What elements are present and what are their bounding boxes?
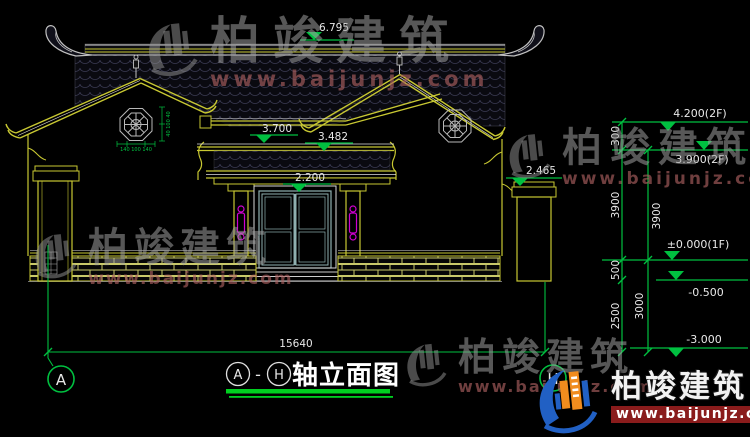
- octagon-window-left: [120, 109, 152, 141]
- cad-viewport: { "watermark": { "brand": "柏竣建筑", "url":…: [0, 0, 750, 437]
- brand-logo-name: 柏竣建筑: [611, 371, 750, 404]
- title-underline-thick: [226, 389, 390, 394]
- dim-3000: 3000: [634, 293, 646, 320]
- level-marker-ridge: 6.795: [300, 22, 354, 40]
- level-footing: -3.000: [686, 333, 721, 346]
- brand-logo: 柏竣建筑 www.baijunjz.com: [531, 360, 750, 434]
- level-main-eave-value: 3.700: [262, 123, 292, 135]
- level-parapet-2f: 4.200(2F): [673, 107, 726, 120]
- right-pillar: [512, 182, 556, 281]
- level-porch-eave-value: 3.482: [318, 131, 348, 143]
- level-triangle: [668, 271, 684, 280]
- axis-a-label: A: [56, 371, 67, 389]
- level-side-wall-value: 2.465: [526, 165, 556, 177]
- roof-ridge: [46, 26, 544, 56]
- level-floor-1f: ±0.000(1F): [667, 238, 730, 251]
- dim-300: 300: [610, 126, 622, 146]
- window-dim-h: 140 100 140: [120, 147, 152, 153]
- dim-total-width: 15640: [279, 338, 312, 350]
- drawing-title: A - H 轴立面图: [226, 360, 400, 398]
- dim-2500: 2500: [610, 303, 622, 330]
- level-floor-2f: 3.900(2F): [675, 153, 728, 166]
- title-underline-thin: [229, 396, 393, 398]
- level-triangle: [660, 122, 676, 131]
- level-ridge-value: 6.795: [319, 22, 349, 34]
- level-triangle: [696, 141, 712, 150]
- left-pillar: [33, 166, 79, 281]
- level-triangle: [668, 348, 684, 357]
- window-dim-v: 40 100 40: [166, 111, 172, 136]
- axis-marker-a: A: [48, 366, 74, 392]
- level-triangle: [664, 251, 680, 260]
- title-axis-to: H: [274, 368, 284, 383]
- brand-logo-url: www.baijunjz.com: [611, 406, 750, 423]
- level-door-head-value: 2.200: [295, 172, 325, 184]
- dim-3900-outer: 3900: [610, 192, 622, 219]
- title-dash: -: [255, 365, 261, 384]
- octagon-window-right: [439, 110, 471, 142]
- brand-logo-icon: [531, 360, 605, 434]
- level-grade: -0.500: [688, 286, 723, 299]
- title-axis-from: A: [234, 368, 243, 383]
- dim-3900-inner: 3900: [651, 203, 663, 230]
- dim-500: 500: [610, 260, 622, 280]
- title-label: 轴立面图: [292, 360, 400, 391]
